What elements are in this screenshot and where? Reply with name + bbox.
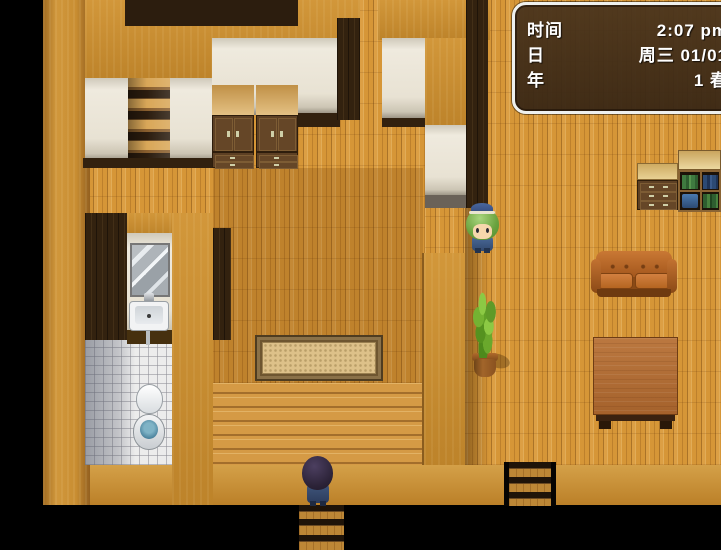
hud-row-year: 年 1 春	[527, 68, 721, 93]
game-viewport[interactable]: 时间 2:07 pm 日 周三 01/01 年 1 春	[0, 0, 721, 550]
sink-pipe	[146, 331, 150, 345]
hud-label-year: 年	[527, 68, 545, 93]
plant-leaves	[469, 292, 501, 358]
book-large-blue	[682, 194, 698, 208]
wall-side-shadow	[337, 18, 360, 120]
wardrobe	[256, 85, 298, 168]
wall-base-strip	[83, 158, 212, 168]
npc-hair	[302, 456, 333, 490]
hud-row-time: 时间 2:07 pm	[527, 18, 721, 43]
table	[593, 337, 678, 429]
map-edge-left	[0, 0, 43, 550]
toilet-lid	[136, 384, 163, 414]
player-character	[463, 202, 501, 252]
wall-front-panel	[425, 125, 466, 197]
staircase-up[interactable]	[128, 78, 170, 164]
mirror	[130, 243, 170, 297]
bathroom-shadow-wall	[85, 213, 130, 340]
left-outer-wall	[43, 0, 90, 505]
hud-label-time: 时间	[527, 18, 563, 43]
center-wall-top	[425, 38, 466, 127]
hud-value-day: 周三 01/01	[639, 43, 721, 68]
player-cap-brim	[469, 211, 495, 214]
time-date-hud: 时间 2:07 pm 日 周三 01/01 年 1 春	[512, 2, 721, 114]
lower-darkness	[0, 505, 721, 550]
hud-value-year: 1 春	[694, 68, 721, 93]
bathroom-right-wall	[172, 213, 213, 505]
ledge-wall-band	[43, 465, 721, 505]
ladder-down-right[interactable]	[509, 462, 551, 506]
books-green	[682, 175, 698, 189]
books-blue	[703, 175, 718, 189]
wall-base-strip	[382, 118, 425, 127]
hud-row-day: 日 周三 01/01	[527, 43, 721, 68]
wall-side-shadow	[213, 228, 231, 340]
couch	[591, 251, 677, 298]
wall-front-panel	[170, 78, 212, 162]
wall-side-shadow	[466, 0, 488, 208]
rug	[255, 335, 383, 381]
wardrobe	[212, 85, 254, 168]
hud-label-day: 日	[527, 43, 545, 68]
topleft-dark-eave	[125, 0, 298, 26]
lower-wall-column	[422, 253, 465, 465]
books-green	[703, 194, 718, 208]
potted-plant	[463, 290, 511, 382]
wall-front-panel	[382, 38, 425, 120]
wall-base-strip	[298, 113, 340, 127]
pot	[474, 359, 496, 377]
sink	[129, 301, 169, 331]
hud-value-time: 2:07 pm	[657, 18, 721, 43]
dresser	[637, 163, 678, 210]
bathroom-alcove-top	[127, 213, 172, 235]
toilet-bowl	[133, 414, 165, 450]
npc-character[interactable]	[300, 456, 335, 506]
wood-deck	[213, 383, 423, 465]
ladder-down-left[interactable]	[299, 505, 344, 550]
bookshelf	[678, 150, 721, 212]
wall-front-panel	[85, 78, 128, 162]
